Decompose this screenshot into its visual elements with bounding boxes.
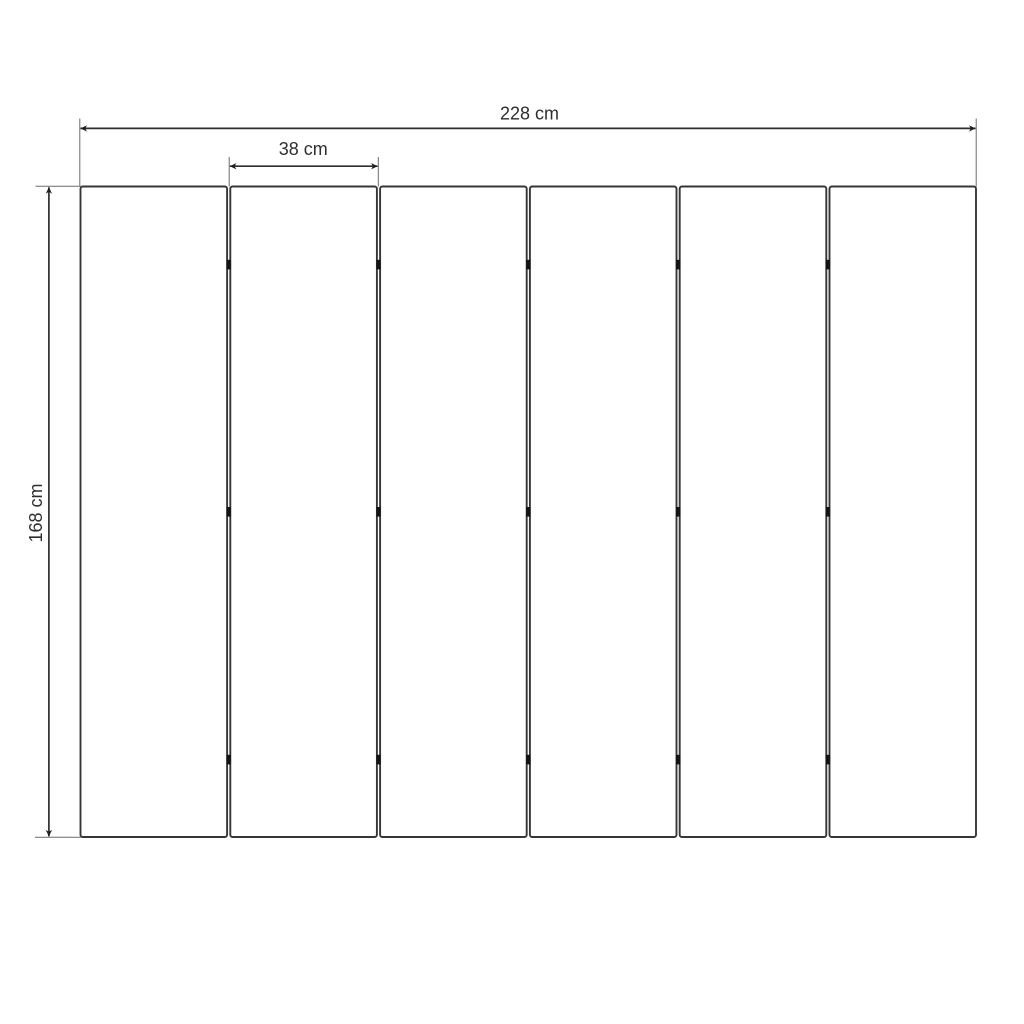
- svg-text:228 cm: 228 cm: [500, 104, 559, 124]
- svg-text:38 cm: 38 cm: [279, 139, 328, 159]
- svg-text:168 cm: 168 cm: [26, 483, 46, 542]
